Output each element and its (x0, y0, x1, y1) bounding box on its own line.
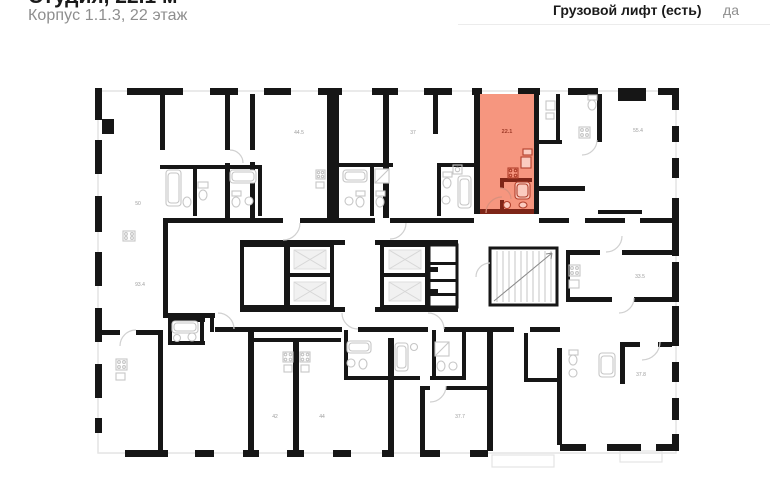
service-room (242, 245, 286, 307)
fixtures (116, 95, 615, 380)
unit-label-42: 42 (272, 414, 278, 420)
unit-label-33-5: 33.5 (635, 274, 645, 280)
sink-icon (519, 202, 527, 208)
highlighted-unit[interactable]: 22.1 (480, 94, 534, 214)
core (240, 240, 557, 312)
unit-label-93-4: 93.4 (135, 282, 145, 288)
unit-label-50: 50 (135, 201, 141, 207)
unit-label-37-8: 37.8 (636, 372, 646, 378)
floor-plan: 22.1 50 44.5 37 55.4 93.4 33.5 42 44 37.… (0, 0, 770, 500)
staircase (490, 248, 557, 305)
elevator-shafts (288, 245, 427, 307)
highlighted-unit-area-label: 22.1 (502, 129, 513, 135)
unit-label-37: 37 (410, 130, 416, 136)
unit-label-37-7: 37.7 (455, 414, 465, 420)
interior-walls-right (566, 250, 672, 302)
unit-label-55-4: 55.4 (633, 128, 643, 134)
unit-label-44-5: 44.5 (294, 130, 304, 136)
listing-page: Студия, 22.1 м² Корпус 1.1.3, 22 этаж Гр… (0, 0, 770, 500)
kitchen-sink-icon (521, 157, 531, 168)
duct-shaft (429, 245, 457, 307)
unit-label-44: 44 (319, 414, 325, 420)
washer-icon (504, 202, 511, 209)
interior-walls-bottom (95, 318, 672, 451)
